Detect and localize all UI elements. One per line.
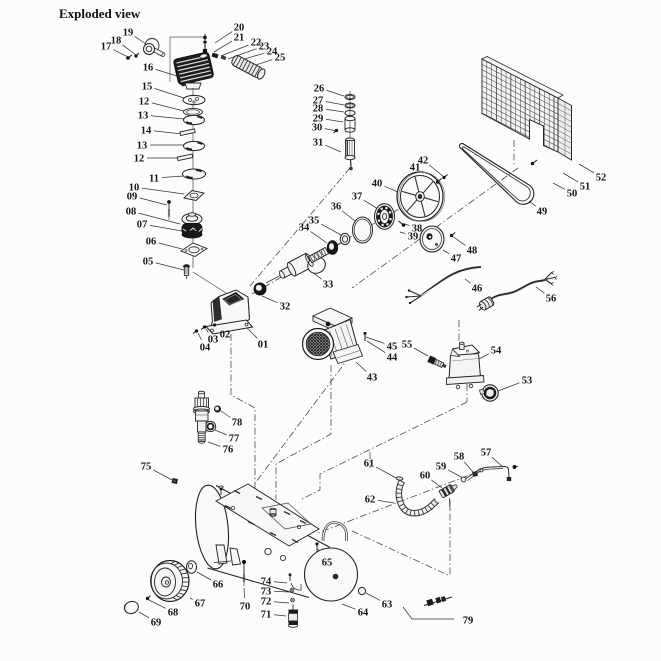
svg-text:44: 44 (387, 353, 398, 364)
svg-text:67: 67 (195, 599, 206, 610)
svg-text:69: 69 (151, 618, 162, 629)
svg-text:64: 64 (358, 608, 369, 619)
svg-text:17: 17 (101, 42, 112, 53)
svg-text:49: 49 (537, 207, 548, 218)
svg-text:26: 26 (314, 84, 325, 95)
svg-text:42: 42 (418, 156, 429, 167)
svg-text:18: 18 (111, 36, 122, 47)
svg-text:07: 07 (137, 220, 148, 231)
svg-text:13: 13 (138, 111, 149, 122)
svg-text:47: 47 (451, 254, 462, 265)
svg-text:76: 76 (223, 445, 234, 456)
svg-text:31: 31 (313, 138, 324, 149)
svg-text:12: 12 (139, 97, 150, 108)
svg-text:48: 48 (467, 246, 478, 257)
svg-text:21: 21 (234, 33, 245, 44)
svg-text:37: 37 (352, 192, 363, 203)
svg-text:02: 02 (220, 330, 231, 341)
svg-text:04: 04 (200, 343, 211, 354)
svg-text:05: 05 (143, 257, 154, 268)
svg-text:75: 75 (141, 462, 152, 473)
svg-text:55: 55 (402, 340, 413, 351)
svg-text:33: 33 (323, 280, 334, 291)
svg-text:14: 14 (141, 126, 152, 137)
svg-text:12: 12 (134, 154, 145, 165)
svg-text:11: 11 (149, 174, 159, 185)
svg-text:51: 51 (580, 182, 591, 193)
svg-text:39: 39 (408, 232, 419, 243)
svg-text:15: 15 (142, 82, 153, 93)
svg-text:65: 65 (322, 558, 333, 569)
svg-text:63: 63 (382, 600, 393, 611)
svg-text:13: 13 (137, 141, 148, 152)
svg-text:06: 06 (146, 237, 157, 248)
svg-text:43: 43 (367, 373, 378, 384)
svg-text:72: 72 (261, 597, 272, 608)
svg-text:40: 40 (372, 179, 383, 190)
svg-text:01: 01 (258, 340, 269, 351)
svg-text:16: 16 (143, 63, 154, 74)
svg-text:45: 45 (387, 342, 398, 353)
svg-text:25: 25 (275, 53, 286, 64)
svg-text:71: 71 (261, 610, 272, 621)
svg-text:73: 73 (261, 587, 272, 598)
svg-text:10: 10 (129, 183, 140, 194)
svg-text:50: 50 (567, 189, 578, 200)
svg-text:58: 58 (454, 452, 465, 463)
svg-text:61: 61 (364, 459, 375, 470)
svg-text:30: 30 (312, 123, 323, 134)
svg-text:79: 79 (463, 616, 474, 627)
svg-text:Exploded view: Exploded view (59, 6, 141, 21)
svg-text:56: 56 (546, 294, 557, 305)
svg-text:08: 08 (126, 207, 137, 218)
svg-text:78: 78 (232, 418, 243, 429)
svg-text:35: 35 (309, 216, 320, 227)
svg-text:32: 32 (280, 302, 291, 313)
svg-text:52: 52 (596, 173, 607, 184)
svg-text:60: 60 (420, 471, 431, 482)
svg-text:54: 54 (491, 346, 502, 357)
svg-text:36: 36 (331, 202, 342, 213)
svg-text:66: 66 (213, 580, 224, 591)
svg-text:77: 77 (229, 434, 240, 445)
svg-text:62: 62 (365, 495, 376, 506)
svg-text:68: 68 (168, 608, 179, 619)
svg-text:74: 74 (261, 577, 272, 588)
svg-text:70: 70 (240, 602, 251, 613)
svg-text:19: 19 (123, 28, 134, 39)
svg-text:57: 57 (481, 448, 492, 459)
svg-text:53: 53 (522, 376, 533, 387)
svg-text:59: 59 (436, 462, 447, 473)
svg-text:46: 46 (472, 284, 483, 295)
